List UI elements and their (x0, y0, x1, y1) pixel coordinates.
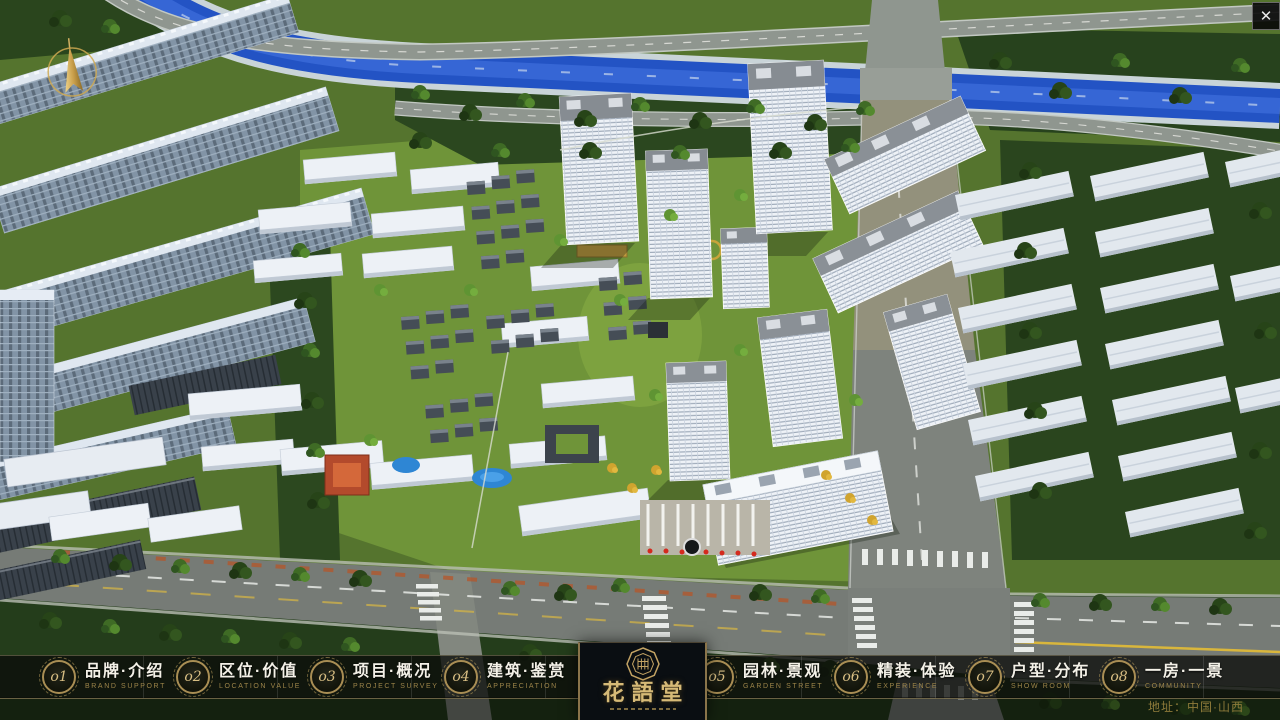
nav-badge-8: o8 (1102, 660, 1136, 694)
entrance-gate (640, 500, 770, 557)
north-needle-icon (45, 36, 99, 99)
address-text: 地址：中国·山西 (1148, 698, 1268, 715)
nav-item-views[interactable]: o8 一房·一景 COMMUNITY (1070, 656, 1204, 698)
nav-badge-4: o4 (444, 660, 478, 694)
nav-badge-6: o6 (834, 660, 868, 694)
nav-item-project[interactable]: o3 项目·概况 PROJECT SURVEY (278, 656, 412, 698)
compass (42, 34, 102, 102)
nav-item-interior[interactable]: o6 精装·体验 EXPERIENCE (802, 656, 936, 698)
nav-label-en: APPRECIATION (487, 683, 566, 690)
nav-badge-1: o1 (42, 660, 76, 694)
site-map-render[interactable] (0, 0, 1280, 720)
nav-item-floorplan[interactable]: o7 户型·分布 SHOW ROOM (936, 656, 1070, 698)
presentation-stage: ✕ o1 品牌·介绍 BRAND SUPPORT o2 区位·价值 LOCATI… (0, 0, 1280, 720)
brand-seal-icon (626, 647, 660, 681)
nav-badge-3: o3 (310, 660, 344, 694)
nav-item-architecture[interactable]: o4 建筑·鉴赏 APPRECIATION (412, 656, 546, 698)
nav-badge-2: o2 (176, 660, 210, 694)
nav-item-brand[interactable]: o1 品牌·介绍 BRAND SUPPORT (10, 656, 144, 698)
brand-tagline-rule (610, 708, 676, 710)
nav-label-zh: 建筑·鉴赏 (487, 664, 566, 680)
nav-label-en: COMMUNITY (1145, 683, 1224, 690)
brand-name: 花語堂 (595, 682, 689, 704)
nav-badge-7: o7 (968, 660, 1002, 694)
close-button[interactable]: ✕ (1252, 2, 1280, 30)
brand-plaque[interactable]: 花語堂 (578, 642, 707, 720)
nav-label-zh: 一房·一景 (1145, 664, 1224, 680)
nav-item-location[interactable]: o2 区位·价值 LOCATION VALUE (144, 656, 278, 698)
